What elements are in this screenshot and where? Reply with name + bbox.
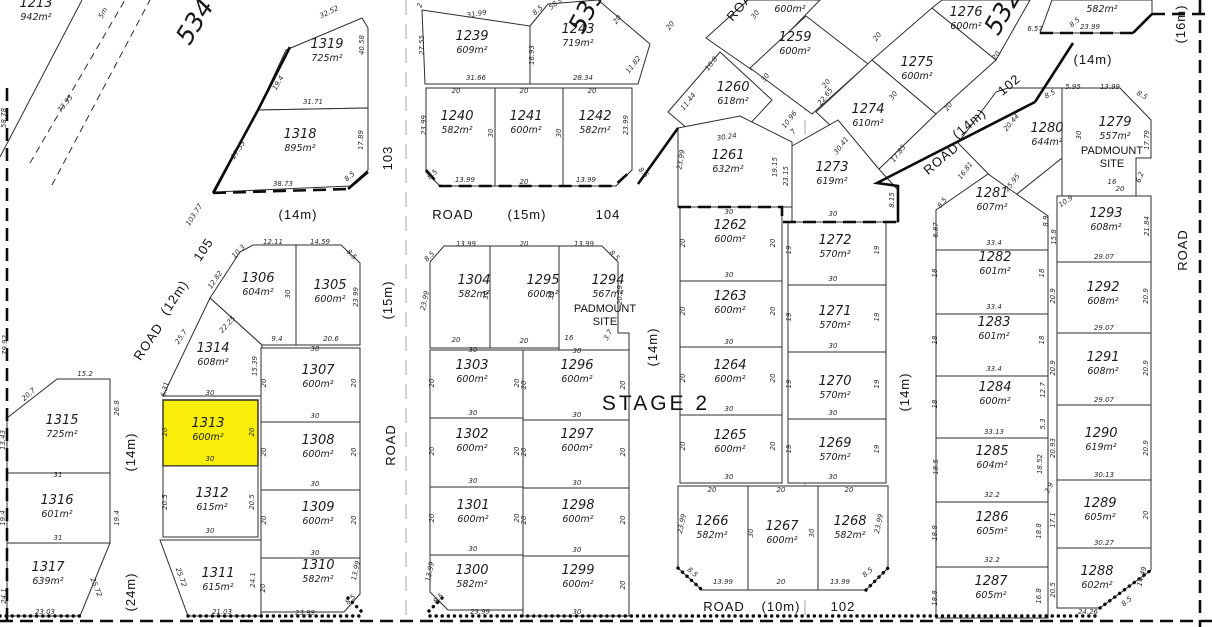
lot-area: 608m² (1087, 296, 1118, 307)
measurement-label: 20 (588, 87, 597, 95)
road-label: 105 (190, 235, 216, 264)
road-label: (14m) (123, 433, 138, 472)
lot-area: 582m² (302, 574, 333, 585)
padmount-site-label: PADMOUNT (574, 303, 636, 315)
measurement-label: 20 (520, 337, 529, 345)
measurement-label: 30 (725, 271, 734, 279)
lot-area: 600m² (561, 374, 592, 385)
measurement-label: 20 (428, 446, 436, 455)
measurement-label: 20 (520, 87, 529, 95)
padmount-site-label: SITE (593, 316, 617, 328)
lot-polygon-1242 (563, 88, 632, 186)
lot-number: 1313 (191, 416, 224, 431)
lot-number: 1297 (560, 427, 594, 442)
lot-number: 1261 (711, 148, 744, 163)
measurement-label: 20 (260, 378, 268, 387)
lot-number: 1281 (975, 186, 1008, 201)
measurement-label: 20 (679, 441, 687, 450)
lot-number: 1293 (1089, 206, 1122, 221)
lot-number: 1274 (851, 102, 884, 117)
measurement-label: 23.99 (419, 289, 431, 311)
measurement-label: 29.07 (1094, 324, 1115, 332)
measurement-label: 5.95 (1065, 83, 1081, 91)
road-label: ROAD (1175, 229, 1190, 271)
lot-area: 942m² (20, 12, 51, 23)
measurement-label: 31 (54, 471, 63, 479)
lot-number: 1273 (815, 160, 848, 175)
lot-area: 607m² (976, 202, 1007, 213)
measurement-label: 2 (416, 2, 425, 9)
easement-line (0, 0, 82, 157)
measurement-label: 9.4 (271, 335, 282, 343)
measurement-label: 23.99 (1080, 23, 1101, 31)
measurement-label: 15.8 (1050, 229, 1058, 245)
measurement-label: 8.5 (1120, 594, 1134, 608)
measurement-label: 20.9 (1142, 360, 1150, 376)
measurement-label: 38.73 (273, 180, 293, 188)
lot-area: 644m² (1031, 137, 1062, 148)
measurement-label: 14.59 (310, 238, 331, 246)
lot-number: 1300 (455, 563, 488, 578)
measurement-label: 30 (311, 412, 320, 420)
lot-number: 1268 (833, 514, 866, 529)
measurement-label: 20.5 (161, 494, 169, 510)
measurement-label: 19 (785, 245, 793, 254)
lot-area: 719m² (562, 38, 593, 49)
lot-number: 1311 (201, 566, 234, 581)
measurement-label: 13.99 (713, 578, 734, 586)
lot-area: 604m² (242, 287, 273, 298)
lot-number: 1310 (301, 558, 334, 573)
measurement-label: 18 (931, 268, 939, 277)
lot-number: 1289 (1083, 496, 1116, 511)
measurement-label: 30 (311, 480, 320, 488)
road-label: 104 (596, 207, 621, 222)
measurement-label: 20 (350, 447, 358, 456)
measurement-label: 16 (565, 334, 574, 342)
measurement-label: 26.8 (113, 400, 121, 416)
measurement-label: 23.03 (35, 608, 55, 616)
lot-number: 1319 (310, 37, 343, 52)
measurement-label: 16.93 (528, 45, 536, 65)
lot-area: 725m² (46, 429, 77, 440)
lot-area: 600m² (714, 444, 745, 455)
measurement-label: 30 (747, 528, 755, 537)
lot-area: 582m² (441, 125, 472, 136)
measurement-label: 13.99 (576, 176, 597, 184)
road-label: (12m) (157, 277, 191, 318)
lot-polygon-1316 (7, 473, 110, 543)
measurement-label: 19 (785, 312, 793, 321)
road-label: (24m) (123, 573, 138, 612)
lot-polygon-1319 (258, 18, 368, 110)
lot-area: 600m² (561, 443, 592, 454)
measurement-label: 17.1 (1049, 512, 1057, 528)
measurement-label: 30 (573, 608, 582, 616)
lot-area: 600m² (714, 234, 745, 245)
measurement-label: 20 (428, 513, 436, 522)
measurement-label: 29.07 (1094, 253, 1115, 261)
measurement-label: 6.87 (932, 222, 940, 238)
measurement-label: 24.26 (1078, 608, 1099, 616)
measurement-label: 20 (260, 515, 268, 524)
measurement-label: 30 (808, 528, 816, 537)
lot-area: 557m² (1099, 131, 1130, 142)
measurement-label: 28.34 (573, 74, 593, 82)
road-label: (15m) (380, 281, 395, 320)
measurement-label: 27.55 (418, 34, 426, 55)
measurement-label: 20 (769, 373, 777, 382)
lot-area: 600m² (979, 396, 1010, 407)
subdivision-plan: 73.935m58.7879.9232.5240.5819.431.7117.8… (0, 0, 1212, 627)
measurement-label: 20 (619, 580, 627, 589)
road-label: (14m) (645, 328, 660, 367)
measurement-label: 20 (708, 486, 717, 494)
lot-area: 605m² (975, 590, 1006, 601)
road-label: (15m) (508, 207, 547, 222)
measurement-label: 20 (679, 238, 687, 247)
lot-area: 600m² (527, 289, 558, 300)
lot-number: 1272 (818, 233, 851, 248)
measurement-label: 20 (350, 378, 358, 387)
easement-dashed-line (52, 0, 150, 185)
lot-area: 895m² (284, 143, 315, 154)
road-label: ROAD (130, 320, 166, 363)
measurement-label: 30 (487, 128, 495, 137)
measurement-label: 20.93 (1049, 438, 1057, 458)
lot-number: 1241 (509, 109, 542, 124)
stage-label: STAGE 2 (602, 392, 710, 415)
measurement-label: 18 (1038, 268, 1046, 277)
measurement-label: 20 (452, 336, 461, 344)
measurement-label: 13.99 (1100, 83, 1121, 91)
measurement-label: 5.3 (1039, 418, 1047, 429)
measurement-label: 13.99 (456, 240, 477, 248)
lot-number: 1296 (560, 358, 593, 373)
lot-area: 615m² (202, 582, 233, 593)
lot-number: 1290 (1084, 426, 1117, 441)
lot-area: 615m² (196, 502, 227, 513)
lot-number: 1275 (900, 55, 933, 70)
measurement-label: 30 (829, 409, 838, 417)
lot-number: 1312 (195, 486, 228, 501)
measurement-label: 103.77 (184, 202, 204, 227)
measurement-label: 20 (777, 486, 786, 494)
measurement-label: 16.8 (1035, 588, 1043, 604)
lot-area: 600m² (779, 46, 810, 57)
lot-number: 1305 (313, 278, 346, 293)
measurement-label: 6.57 (1027, 25, 1043, 33)
lot-number: 1240 (440, 109, 473, 124)
measurement-label: 24.1 (249, 572, 257, 588)
lot-number: 1269 (818, 436, 851, 451)
lot-number: 1279 (1098, 115, 1131, 130)
measurement-label: 20 (769, 441, 777, 450)
measurement-label: 13.43 (0, 430, 7, 450)
measurement-label: 23.99 (295, 609, 316, 617)
road-label: ROAD (703, 599, 745, 614)
measurement-label: 20.6 (323, 335, 339, 343)
lot-number: 1298 (561, 498, 594, 513)
lot-area: 582m² (834, 530, 865, 541)
measurement-label: 79.92 (1, 334, 9, 355)
measurement-label: 23.15 (782, 165, 790, 186)
lot-number: 1242 (578, 109, 611, 124)
measurement-label: 30 (311, 345, 320, 353)
lot-area: 567m² (592, 289, 623, 300)
lot-area: 600m² (714, 374, 745, 385)
measurement-label: 21.03 (212, 608, 232, 616)
lot-area: 608m² (1090, 222, 1121, 233)
lot-area: 608m² (197, 357, 228, 368)
measurement-label: 20 (428, 378, 436, 387)
road-label: (14m) (279, 207, 318, 222)
lot-number: 1213 (19, 0, 52, 11)
lot-area: 601m² (41, 509, 72, 520)
measurement-label: 30 (573, 411, 582, 419)
lot-area: 570m² (819, 452, 850, 463)
measurement-label: 19 (785, 444, 793, 453)
lot-area: 601m² (978, 331, 1009, 342)
measurement-label: 19 (873, 379, 881, 388)
lot-number: 1291 (1086, 350, 1119, 365)
measurement-label: 7 (789, 127, 798, 136)
measurement-label: 30 (469, 477, 478, 485)
measurement-label: 18.5 (932, 459, 940, 475)
measurement-label: 12.7 (1039, 382, 1047, 398)
lot-area: 600m² (302, 379, 333, 390)
measurement-label: 30 (725, 338, 734, 346)
measurement-label: 29.07 (1094, 396, 1115, 404)
lot-area: 609m² (456, 45, 487, 56)
measurement-label: 20.9 (1049, 288, 1057, 304)
road-label: (14m) (1074, 52, 1113, 67)
lot-number: 1260 (716, 80, 749, 95)
measurement-label: 58.78 (0, 107, 8, 128)
lot-area: 632m² (712, 164, 743, 175)
lot-area: 600m² (302, 516, 333, 527)
lot-number: 1307 (301, 363, 335, 378)
lot-area: 582m² (458, 289, 489, 300)
road-number-large: 534 (170, 0, 220, 49)
measurement-label: 32.2 (984, 491, 1000, 499)
lot-area: 600m² (950, 21, 981, 32)
measurement-label: 30 (573, 479, 582, 487)
lot-area: 600m² (456, 443, 487, 454)
measurement-label: 20 (520, 380, 528, 389)
measurement-label: 18 (931, 399, 939, 408)
lot-area: 639m² (32, 576, 63, 587)
measurement-label: 30 (206, 389, 215, 397)
lot-number: 1294 (591, 273, 624, 288)
measurement-label: 20 (520, 178, 529, 186)
lot-area: 570m² (819, 390, 850, 401)
lot-area: 618m² (717, 96, 748, 107)
measurement-label: 23.99 (622, 114, 630, 135)
lot-number: 1301 (456, 498, 489, 513)
measurement-label: 30 (311, 549, 320, 557)
measurement-label: 8.9 (1042, 215, 1050, 227)
lot-area: 725m² (311, 53, 342, 64)
measurement-label: 21.84 (1143, 216, 1151, 236)
lot-number: 1267 (765, 519, 799, 534)
measurement-label: 32.52 (318, 4, 340, 20)
measurement-label: 20.9 (1142, 288, 1150, 304)
measurement-label: 30 (206, 455, 215, 463)
measurement-label: 33.4 (986, 303, 1002, 311)
lot-area: 582m² (696, 530, 727, 541)
lot-number: 1287 (974, 574, 1008, 589)
lot-number: 1284 (978, 380, 1011, 395)
measurement-label: 30 (829, 342, 838, 350)
measurement-label: 30 (829, 210, 838, 218)
measurement-label: 30 (469, 409, 478, 417)
measurement-label: 33.13 (984, 428, 1004, 436)
measurement-label: 20 (452, 87, 461, 95)
lot-area: 600m² (302, 449, 333, 460)
measurement-label: 73.93 (56, 93, 75, 114)
lot-area: 600m² (192, 432, 223, 443)
lot-area: 600m² (774, 4, 805, 15)
measurement-label: 30 (469, 346, 478, 354)
lot-number: 1303 (455, 358, 488, 373)
lot-number: 1263 (713, 289, 746, 304)
measurement-label: 20 (1142, 510, 1150, 519)
lot-number: 1318 (283, 127, 316, 142)
measurement-label: 19.4 (113, 510, 121, 526)
road-label: ROAD (432, 207, 474, 222)
measurement-label: 20 (520, 447, 528, 456)
lot-polygon-1241 (495, 88, 563, 186)
measurement-label: 31 (54, 534, 63, 542)
lot-area: 600m² (562, 514, 593, 525)
road-label: 102 (831, 599, 856, 614)
measurement-label: 30 (206, 527, 215, 535)
measurement-label: 20 (665, 19, 677, 31)
measurement-label: 17.89 (357, 129, 365, 150)
lot-number: 1304 (457, 273, 490, 288)
lot-number: 1280 (1030, 121, 1063, 136)
lot-number: 1306 (241, 271, 274, 286)
lot-area: 602m² (1081, 580, 1112, 591)
measurement-label: 5m (97, 6, 110, 20)
measurement-label: 13.99 (455, 176, 476, 184)
measurement-label: 31.66 (466, 74, 487, 82)
lot-number: 1286 (975, 510, 1008, 525)
measurement-label: 30 (725, 405, 734, 413)
measurement-label: 20 (619, 380, 627, 389)
lot-number: 1239 (455, 29, 488, 44)
measurement-label: 18.8 (1035, 523, 1043, 539)
measurement-label: 18 (1038, 335, 1046, 344)
lot-number: 1266 (695, 514, 728, 529)
measurement-label: 20 (679, 373, 687, 382)
lot-area: 600m² (714, 305, 745, 316)
measurement-label: 8.15 (888, 192, 896, 208)
lot-number: 1315 (45, 413, 78, 428)
measurement-label: 20 (161, 427, 169, 436)
measurement-label: 30 (1075, 130, 1083, 139)
measurement-label: 18.52 (1036, 453, 1044, 474)
road-label: (10m) (762, 599, 801, 614)
measurement-label: 20 (619, 447, 627, 456)
measurement-label: 10.96 (780, 109, 799, 130)
lot-number: 1302 (455, 427, 488, 442)
lot-area: 600m² (510, 125, 541, 136)
lot-number: 1308 (301, 433, 334, 448)
measurement-label: 32.2 (984, 556, 1000, 564)
measurement-label: 20 (260, 447, 268, 456)
road-label: (14m) (897, 373, 912, 412)
measurement-label: 30 (284, 289, 292, 298)
lot-number: 1259 (778, 30, 811, 45)
measurement-label: 24.1 (0, 588, 8, 604)
measurement-label: 31.71 (303, 98, 323, 106)
measurement-label: 13.99 (574, 240, 595, 248)
measurement-label: 19 (873, 312, 881, 321)
lot-area: 600m² (456, 374, 487, 385)
measurement-label: 19.4 (0, 510, 7, 526)
measurement-label: 19.15 (771, 156, 779, 177)
padmount-site-label: SITE (1100, 158, 1124, 170)
lot-number: 1271 (818, 304, 851, 319)
measurement-label: 20 (777, 578, 786, 586)
measurement-label: 30 (725, 473, 734, 481)
measurement-label: 18.8 (931, 590, 939, 606)
lot-area: 608m² (1087, 366, 1118, 377)
easement-dashed-line (30, 0, 125, 163)
measurement-label: 30 (573, 546, 582, 554)
lot-area: 570m² (819, 249, 850, 260)
lot-number: 1299 (561, 563, 594, 578)
measurement-label: 20.9 (1049, 360, 1057, 376)
measurement-label: 20 (679, 306, 687, 315)
lot-area: 570m² (819, 320, 850, 331)
measurement-label: 12.11 (263, 238, 283, 246)
measurement-label: 16.81 (956, 160, 975, 181)
lot-number: 1262 (713, 218, 746, 233)
measurement-label: 17.79 (1143, 129, 1151, 150)
measurement-label: 20 (248, 427, 256, 436)
lot-area: 601m² (979, 266, 1010, 277)
measurement-label: 19 (785, 379, 793, 388)
measurement-label: 19 (873, 444, 881, 453)
lot-number: 1282 (978, 250, 1011, 265)
measurement-label: 33.4 (986, 365, 1002, 373)
lot-area: 582m² (1086, 4, 1117, 15)
measurement-label: 20 (619, 515, 627, 524)
lot-area: 600m² (766, 535, 797, 546)
measurement-label: 30 (725, 208, 734, 216)
lot-number: 1265 (713, 428, 746, 443)
lot-number: 1270 (818, 374, 851, 389)
measurement-label: 15.2 (77, 370, 93, 378)
measurement-label: 20 (769, 238, 777, 247)
measurement-label: 13.99 (830, 578, 851, 586)
measurement-label: 30.27 (1094, 539, 1115, 547)
road-label: 103 (380, 146, 395, 171)
measurement-label: 20 (845, 486, 854, 494)
lot-number: 1288 (1080, 564, 1113, 579)
measurement-label: 20 (769, 306, 777, 315)
measurement-label: 40.58 (358, 34, 366, 55)
lot-number: 1292 (1086, 280, 1119, 295)
measurement-label: 25.7 (174, 328, 190, 346)
lot-area: 619m² (1085, 442, 1116, 453)
lot-number: 1264 (713, 358, 746, 373)
lot-number: 1316 (40, 493, 73, 508)
lot-number: 1317 (31, 560, 65, 575)
